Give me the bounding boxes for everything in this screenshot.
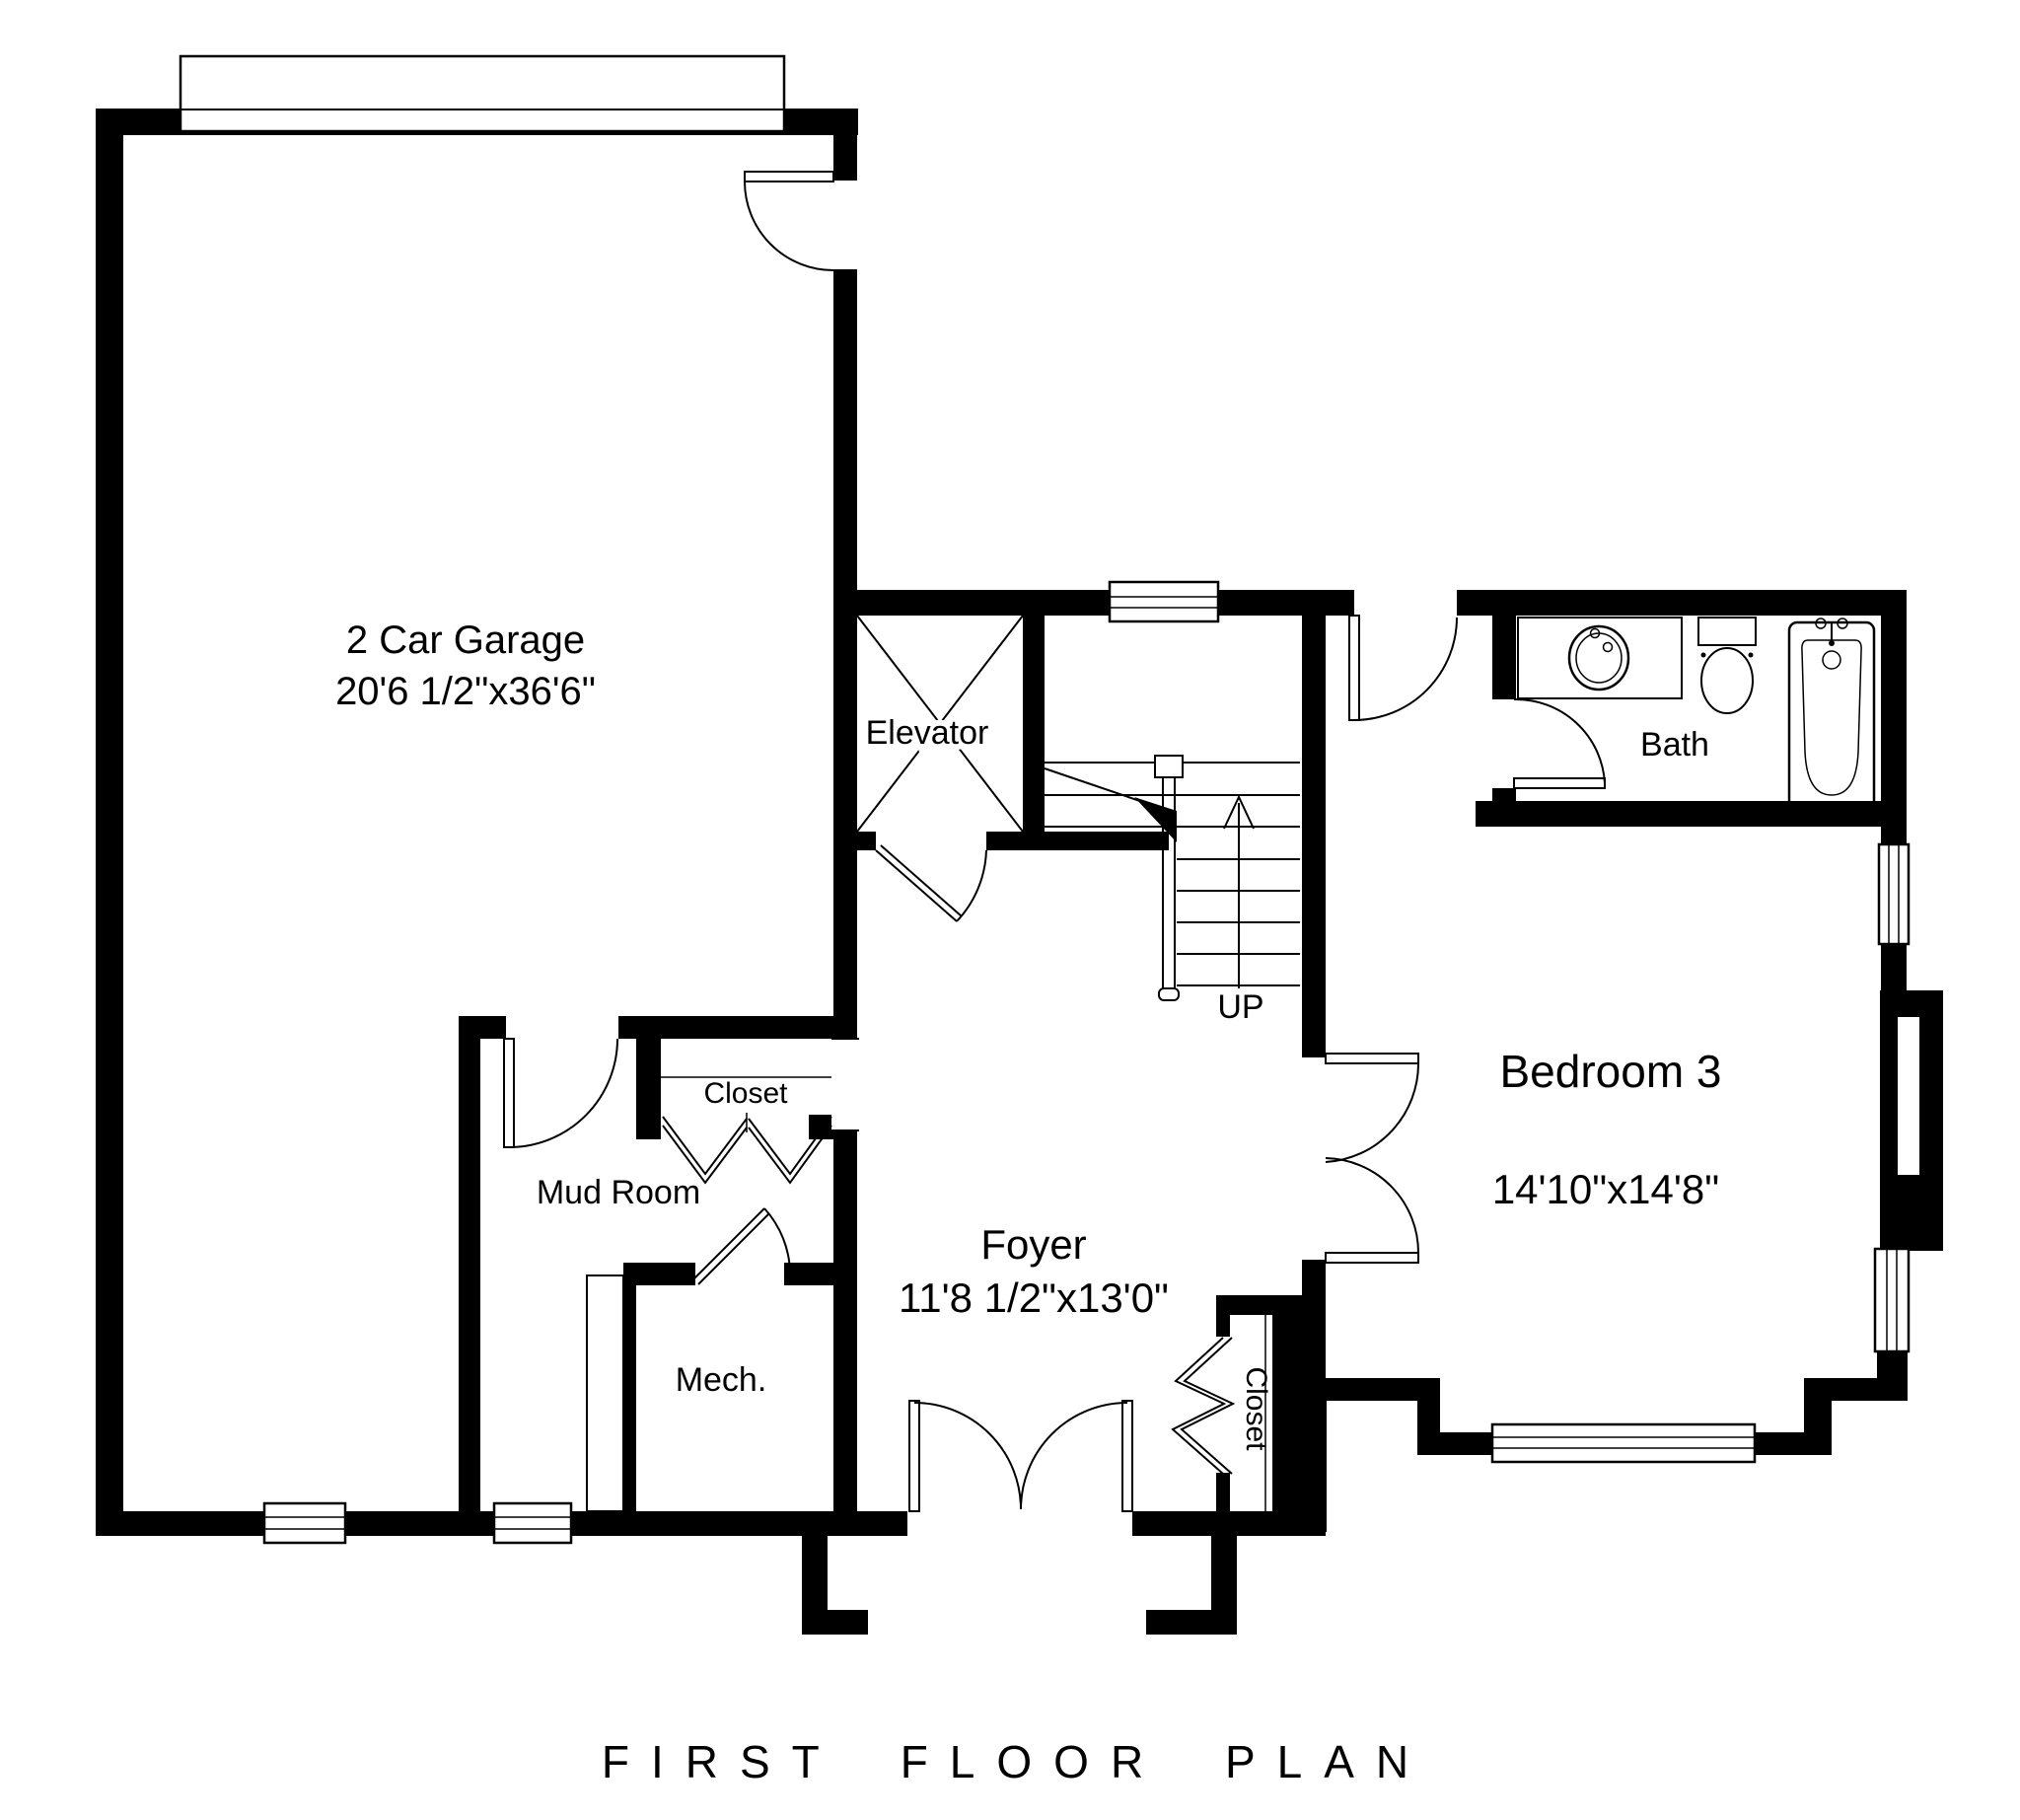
mudroom-label: Mud Room bbox=[537, 1174, 700, 1211]
opening-foyer-mudroom bbox=[831, 1038, 859, 1131]
background bbox=[0, 0, 2020, 1820]
window-front-garage bbox=[264, 1503, 345, 1543]
mech-label: Mech. bbox=[676, 1361, 767, 1399]
floor-plan-page: 2 Car Garage 20'6 1/2"x36'6" Elevator UP… bbox=[0, 0, 2020, 1820]
wall-stair-east bbox=[1302, 590, 1326, 1057]
wall-bath-left-jamb bbox=[1492, 788, 1516, 801]
window-front-mudroom bbox=[494, 1503, 571, 1543]
foyer-label: Foyer bbox=[980, 1221, 1086, 1268]
wall-elevator-right bbox=[1023, 616, 1045, 832]
wall-mech-top-b bbox=[784, 1263, 833, 1285]
wall-elevator-bottom-b bbox=[986, 832, 1169, 850]
wall-bedroom-bottom-1 bbox=[1326, 1378, 1440, 1401]
plan-title: FIRST FLOOR PLAN bbox=[602, 1736, 1430, 1787]
wall-elevator-bottom-a bbox=[833, 832, 876, 850]
wall-right-mid bbox=[1881, 942, 1907, 990]
window-stair-top bbox=[1110, 582, 1218, 621]
bedroom3-label: Bedroom 3 bbox=[1499, 1046, 1721, 1097]
window-bedroom-east-lower bbox=[1875, 1249, 1909, 1351]
elevator-label: Elevator bbox=[866, 714, 989, 752]
wall-mid-top-2 bbox=[1218, 590, 1354, 616]
toilet bbox=[1698, 618, 1756, 713]
wall-porch-right-stub bbox=[1146, 1610, 1237, 1635]
garage-door bbox=[180, 56, 784, 131]
wall-right-upper bbox=[1881, 590, 1907, 848]
wall-bedroom-sill-left bbox=[1417, 1432, 1492, 1455]
wall-front-2 bbox=[345, 1511, 496, 1536]
mudroom-closet-label: Closet bbox=[703, 1077, 788, 1110]
wall-exterior-left bbox=[96, 109, 123, 1536]
wall-foyer-west-lower bbox=[833, 1129, 857, 1511]
wall-bath-bottom bbox=[1476, 801, 1907, 827]
wall-front-3 bbox=[569, 1511, 907, 1536]
wall-porch-left-stub bbox=[802, 1610, 868, 1635]
wall-bath-top bbox=[1492, 590, 1907, 616]
stairs-up-label: UP bbox=[1217, 988, 1263, 1026]
garage-dims: 20'6 1/2"x36'6" bbox=[335, 670, 596, 713]
wall-mid-top-3 bbox=[1457, 590, 1492, 616]
wall-mudcloset-jamb-left bbox=[636, 1115, 661, 1139]
vanity-sink bbox=[1518, 618, 1682, 698]
wall-foyercloset-east bbox=[1272, 1315, 1326, 1511]
wall-mech-left bbox=[623, 1263, 636, 1511]
window-bay-slot bbox=[1897, 1016, 1920, 1176]
wall-mech-top-a bbox=[623, 1263, 695, 1285]
wall-front-4 bbox=[1132, 1511, 1326, 1536]
wall-mid-top-1 bbox=[857, 590, 1110, 616]
bedroom3-dims: 14'10"x14'8" bbox=[1492, 1166, 1719, 1212]
foyer-closet-label: Closet bbox=[1240, 1366, 1272, 1451]
foyer-dims: 11'8 1/2"x13'0" bbox=[899, 1274, 1169, 1321]
wall-garage-mudroom-b bbox=[618, 1016, 857, 1039]
garage-label: 2 Car Garage bbox=[346, 619, 585, 662]
wall-foyercloset-jamb-top bbox=[1216, 1315, 1230, 1337]
wall-bedroom-step-right bbox=[1804, 1378, 1832, 1455]
wall-front-1 bbox=[96, 1511, 266, 1536]
window-bedroom-east-upper bbox=[1879, 844, 1909, 944]
floor-plan-drawing: 2 Car Garage 20'6 1/2"x36'6" Elevator UP… bbox=[0, 0, 2020, 1820]
wall-foyercloset-top bbox=[1216, 1295, 1326, 1315]
window-bedroom-south bbox=[1492, 1424, 1755, 1462]
wall-foyercloset-jamb-bottom bbox=[1216, 1473, 1230, 1511]
chase-mudroom-mech bbox=[587, 1275, 623, 1511]
wall-mudcloset-left bbox=[636, 1039, 661, 1115]
wall-bath-left bbox=[1492, 616, 1516, 699]
wall-garage-right bbox=[833, 269, 857, 1040]
wall-garage-mudroom-a bbox=[459, 1016, 506, 1039]
bath-label: Bath bbox=[1640, 726, 1709, 764]
wall-garage-right-upper bbox=[833, 135, 857, 181]
wall-mudroom-left bbox=[459, 1016, 480, 1511]
